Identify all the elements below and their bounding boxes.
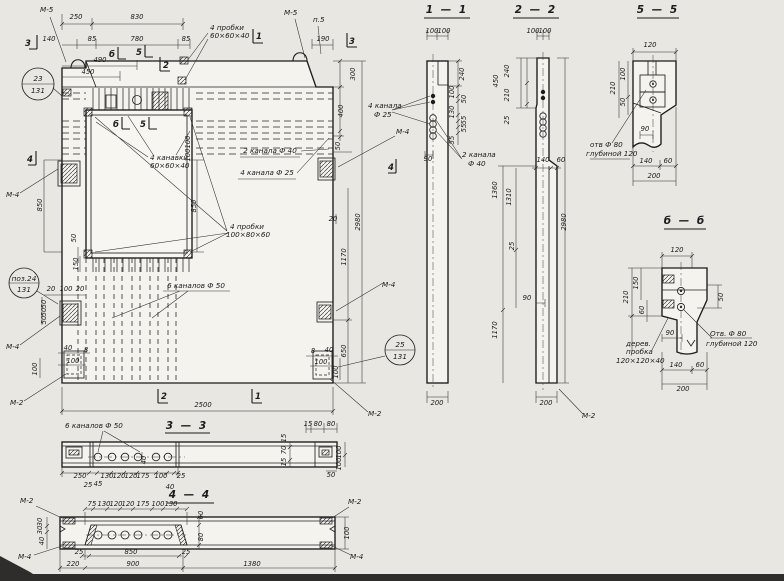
dim-label: 50: [619, 98, 627, 107]
dim-label: 30: [36, 518, 44, 527]
dim-label: 140: [537, 156, 550, 164]
dim-label: 1170: [340, 248, 348, 265]
dim-label: 8: [84, 346, 89, 354]
dim-label: 60: [557, 156, 566, 164]
dim-label: 490: [94, 56, 107, 64]
dim-label: 100: [539, 27, 552, 35]
cut-number: 1: [255, 392, 261, 402]
dim-label: 40: [38, 537, 46, 546]
dim-label: 120: [644, 41, 657, 49]
channels-40-size: Ф 40: [468, 159, 486, 168]
plug: [663, 275, 674, 283]
section-body: [633, 61, 676, 147]
dim-label: 250: [70, 13, 83, 21]
section-b-b: б — б 120 210 150 60 50 90 140 60 200 де…: [616, 215, 758, 393]
dim-label: 55: [448, 136, 456, 145]
dim-label: 140: [43, 35, 56, 43]
dim-label: 250: [74, 472, 87, 480]
dimension-lines: [498, 30, 569, 403]
dim-label: 190: [317, 35, 330, 43]
dim-label: 150: [72, 258, 80, 271]
dim-label: 450: [82, 68, 95, 76]
channels-25-size: Ф 25: [374, 110, 392, 119]
plug-note: пробка: [626, 347, 653, 356]
mark-label: М-5: [40, 5, 54, 14]
dim-label: 55: [460, 124, 468, 133]
dim-label: 100: [448, 86, 456, 99]
section-title: 1 — 1: [426, 4, 468, 16]
channel-hole: [431, 94, 435, 98]
dim-label: 2980: [354, 213, 362, 230]
cut-number: 2: [163, 61, 169, 71]
cut-number: 5: [136, 48, 142, 58]
dim-label: 240: [458, 68, 466, 81]
dim-label: 100: [184, 149, 192, 162]
dim-label: 55: [460, 116, 468, 125]
dim-label: 650: [340, 345, 348, 358]
dim-label: 100: [31, 363, 39, 376]
dim-label: 2980: [560, 213, 568, 230]
dim-label: 25: [84, 481, 93, 489]
mark-label: М-4: [6, 342, 20, 351]
dim-label: 25: [508, 242, 516, 251]
hole-note: глубиной 120: [706, 339, 758, 348]
end-plug: [320, 518, 332, 524]
channels-50-label: 6 каналов Ф 50: [167, 281, 225, 290]
dim-label: 100: [438, 27, 451, 35]
dim-label: 45: [94, 480, 103, 488]
dim-label: 50: [40, 300, 48, 309]
dim-label: 120: [122, 500, 135, 508]
dim-label: 90: [641, 125, 650, 133]
blueprint-sheet: М-5 3 23 131 250 830 140 85 780 85 490 4…: [0, 0, 784, 581]
dim-label: 1360: [491, 181, 499, 198]
plugs-left-size: 100×80×60: [226, 230, 270, 239]
dim-label: 20: [76, 285, 85, 293]
channels-50-label: 6 каналов Ф 50: [65, 421, 123, 430]
end-plug: [322, 450, 329, 455]
section-title: 3 — 3: [166, 420, 208, 432]
ref-bottom: 131: [31, 86, 45, 95]
dim-label: 25: [182, 548, 191, 556]
dim-label: 1310: [505, 188, 513, 205]
dim-label: 175: [137, 500, 150, 508]
mark-label: М-2: [348, 497, 362, 506]
dim-label: 60: [638, 306, 646, 315]
dim-label: 100: [343, 527, 351, 540]
cut-number: 5: [140, 120, 146, 130]
plug: [84, 108, 92, 116]
dim-label: 40: [64, 344, 73, 352]
ref-bottom: 131: [393, 352, 407, 361]
dim-label: 100: [332, 366, 340, 379]
ref-top: 23: [33, 74, 43, 83]
dim-label: 25: [177, 472, 186, 480]
cut-number: 4: [387, 163, 394, 173]
dim-label: 2500: [194, 401, 211, 409]
dim-label: 25: [75, 548, 84, 556]
section-5-5: 5 — 5 120 210 100 50 90 140 60 200 отв Ф…: [586, 4, 679, 186]
dim-label: 15: [280, 434, 288, 443]
blueprint-canvas: М-5 3 23 131 250 830 140 85 780 85 490 4…: [0, 0, 784, 581]
dim-label: 210: [622, 291, 630, 304]
mark-label: М-4: [6, 190, 20, 199]
channels-40-label: 2 канала: [462, 150, 496, 159]
end-plug: [320, 542, 332, 548]
dim-label: 850: [190, 200, 198, 213]
mark-label: М-2: [582, 411, 596, 420]
dim-label: 25: [503, 116, 511, 125]
mark-label: п.5: [313, 15, 325, 24]
dim-label: 210: [503, 89, 511, 102]
dim-label: 210: [609, 82, 617, 95]
dim-label: 30: [36, 526, 44, 535]
dim-label: 220: [67, 560, 80, 568]
dim-label: 40: [140, 456, 148, 465]
plug: [178, 77, 186, 84]
dim-label: 80: [327, 420, 336, 428]
dim-label: 90: [523, 294, 532, 302]
section-title: б — б: [664, 215, 706, 227]
cut-number: 1: [256, 32, 262, 42]
dim-label: 130: [448, 106, 456, 119]
mark-label: М-4: [396, 127, 410, 136]
mark-label: М-5: [284, 8, 298, 17]
dim-label: 140: [640, 157, 653, 165]
plugs-top-size: 60×60×40: [210, 31, 250, 40]
ref-bottom: 131: [17, 285, 31, 294]
dim-label: 1170: [491, 321, 499, 338]
dim-label: 90: [424, 155, 433, 163]
dim-label: 130: [165, 500, 178, 508]
leader-lines: [559, 389, 583, 414]
dim-label: 1380: [243, 560, 260, 568]
cut-number: 3: [349, 37, 355, 47]
end-plug: [63, 542, 75, 548]
channels-25-label: 4 канала: [368, 101, 402, 110]
dim-label: 50: [70, 234, 78, 243]
dim-label: 200: [431, 399, 444, 407]
mark-label: М-4: [350, 552, 364, 561]
dim-label: 300: [349, 68, 357, 81]
dim-label: 400: [337, 105, 345, 118]
section-1-1: 1 — 1 100 100 240 100 50 130 55 55 55 90…: [368, 4, 496, 407]
mark-label: М-2: [368, 409, 382, 418]
dim-label: 60: [197, 511, 205, 520]
mark-label: М-4: [382, 280, 396, 289]
mark-label: М-2: [20, 496, 34, 505]
hole-note: отв Ф 80: [590, 140, 623, 149]
dim-label: 90: [666, 329, 675, 337]
cut-number: б: [109, 49, 115, 60]
plug: [184, 250, 192, 258]
plug: [180, 57, 188, 64]
mark-label: М-2: [10, 398, 24, 407]
opening-outer: [86, 110, 192, 258]
dim-label: 85: [88, 35, 97, 43]
dim-label: 50: [40, 316, 48, 325]
plug: [152, 92, 168, 110]
cut-number: б: [113, 119, 119, 130]
section-body: [536, 58, 557, 383]
dim-label: 200: [648, 172, 661, 180]
lifting-loop-icon: [71, 60, 85, 68]
plug: [63, 89, 71, 96]
dim-label: 120: [671, 246, 684, 254]
cut-number: 4: [26, 155, 33, 165]
ref-top: поз.24: [12, 274, 37, 283]
section-title: 5 — 5: [637, 4, 679, 16]
dim-label: 140: [670, 361, 683, 369]
dim-label: 780: [131, 35, 144, 43]
dim-label: 60: [696, 361, 705, 369]
dim-label: 450: [492, 75, 500, 88]
end-plug: [63, 518, 75, 524]
dim-label: 100: [60, 285, 73, 293]
dim-label: 900: [127, 560, 140, 568]
dim-label: 80: [197, 533, 205, 542]
dim-label: 100: [152, 500, 165, 508]
ref-top: 25: [395, 340, 405, 349]
plug-note: 120×120×40: [616, 356, 665, 365]
channel-hole: [541, 90, 545, 94]
plug: [184, 108, 192, 116]
plug: [663, 300, 674, 308]
dim-label: 75: [88, 500, 97, 508]
scan-artifacts: [0, 556, 784, 581]
channels-25-label: 4 канала Ф 25: [240, 168, 294, 177]
dim-label: 8: [311, 347, 316, 355]
section-3-3: 6 каналов Ф 50 3 — 3 250 25 45 130 120 1…: [60, 420, 347, 491]
channels-40-label: 2 канала Ф 40: [243, 146, 297, 155]
dim-label: 100: [315, 358, 328, 366]
dim-label: 200: [677, 385, 690, 393]
hole-note: глубиной 120: [586, 149, 638, 158]
dim-label: 80: [314, 420, 323, 428]
dim-label: 15: [280, 458, 288, 467]
dim-label: 100: [155, 472, 168, 480]
hole-note: Отв. Ф 80: [710, 329, 747, 338]
section-title: 2 — 2: [515, 4, 557, 16]
dim-label: 85: [182, 35, 191, 43]
dim-label: 150: [632, 277, 640, 290]
dim-label: 100: [619, 68, 627, 81]
section-2-2: 2 — 2 100 100 450 240 210 25 140 60 1360…: [491, 4, 596, 420]
channel-hole: [431, 100, 435, 104]
dim-label: 20: [329, 215, 338, 223]
dim-label: 175: [137, 472, 150, 480]
section-4-4: 4 — 4 М-2 М-2 М-4 М-4 75 130 120 120 175…: [18, 489, 364, 572]
dim-label: 850: [36, 199, 44, 212]
dim-label: 70: [280, 446, 288, 455]
dim-label: 15: [304, 420, 313, 428]
dim-label: 830: [131, 13, 144, 21]
dim-label: 200: [540, 399, 553, 407]
dim-label: 20: [47, 285, 56, 293]
end-plug: [69, 450, 79, 455]
dim-label: 50: [717, 293, 725, 302]
dim-label: 50: [334, 142, 342, 151]
hatch-band: [90, 88, 190, 110]
section-body: [427, 61, 448, 383]
dim-label: 60: [664, 157, 673, 165]
main-view: М-5 3 23 131 250 830 140 85 780 85 490 4…: [6, 5, 415, 418]
cut-number: 2: [161, 392, 167, 402]
dim-label: 100: [335, 458, 343, 471]
hatch-band: [92, 258, 190, 272]
dim-label: 100: [335, 446, 343, 459]
dim-label: 100: [184, 136, 192, 149]
dim-label: 50: [460, 95, 468, 104]
channel-hole: [541, 96, 545, 100]
dim-label: 50: [327, 471, 336, 479]
dim-label: 850: [125, 548, 138, 556]
cut-number: 3: [25, 39, 31, 49]
mark-label: М-4: [18, 552, 32, 561]
dim-label: 240: [503, 65, 511, 78]
dim-label: 100: [67, 357, 80, 365]
dim-label: 40: [325, 346, 334, 354]
plug: [84, 250, 92, 258]
dim-label: 50: [40, 308, 48, 317]
